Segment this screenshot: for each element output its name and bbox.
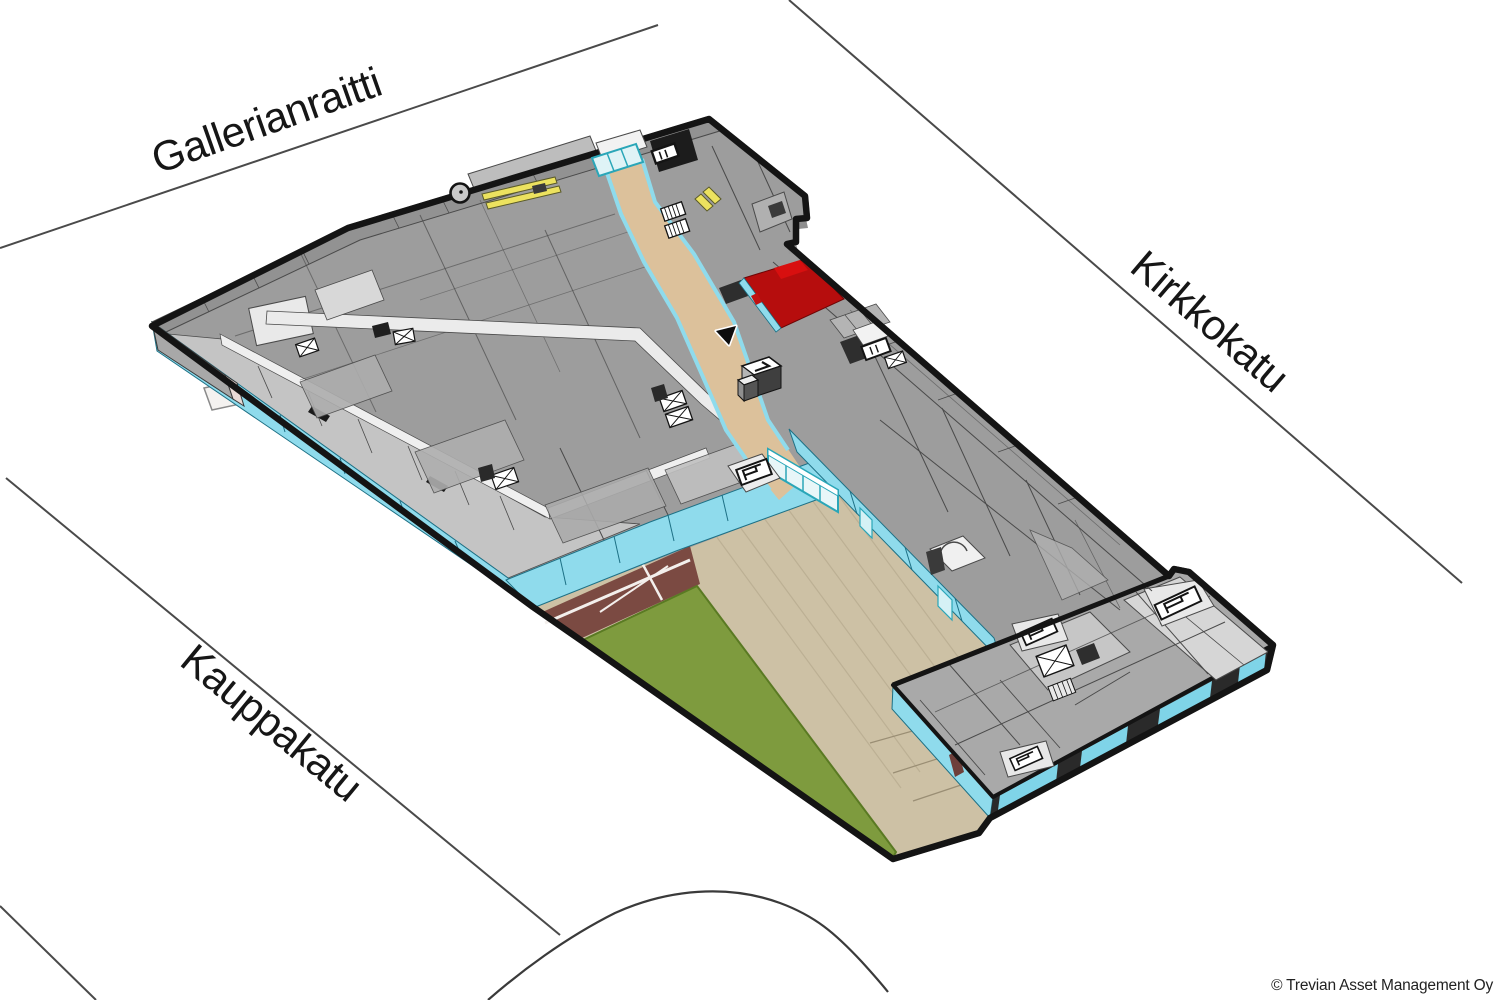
svg-text:© Trevian Asset Management Oy: © Trevian Asset Management Oy [1271, 977, 1493, 994]
